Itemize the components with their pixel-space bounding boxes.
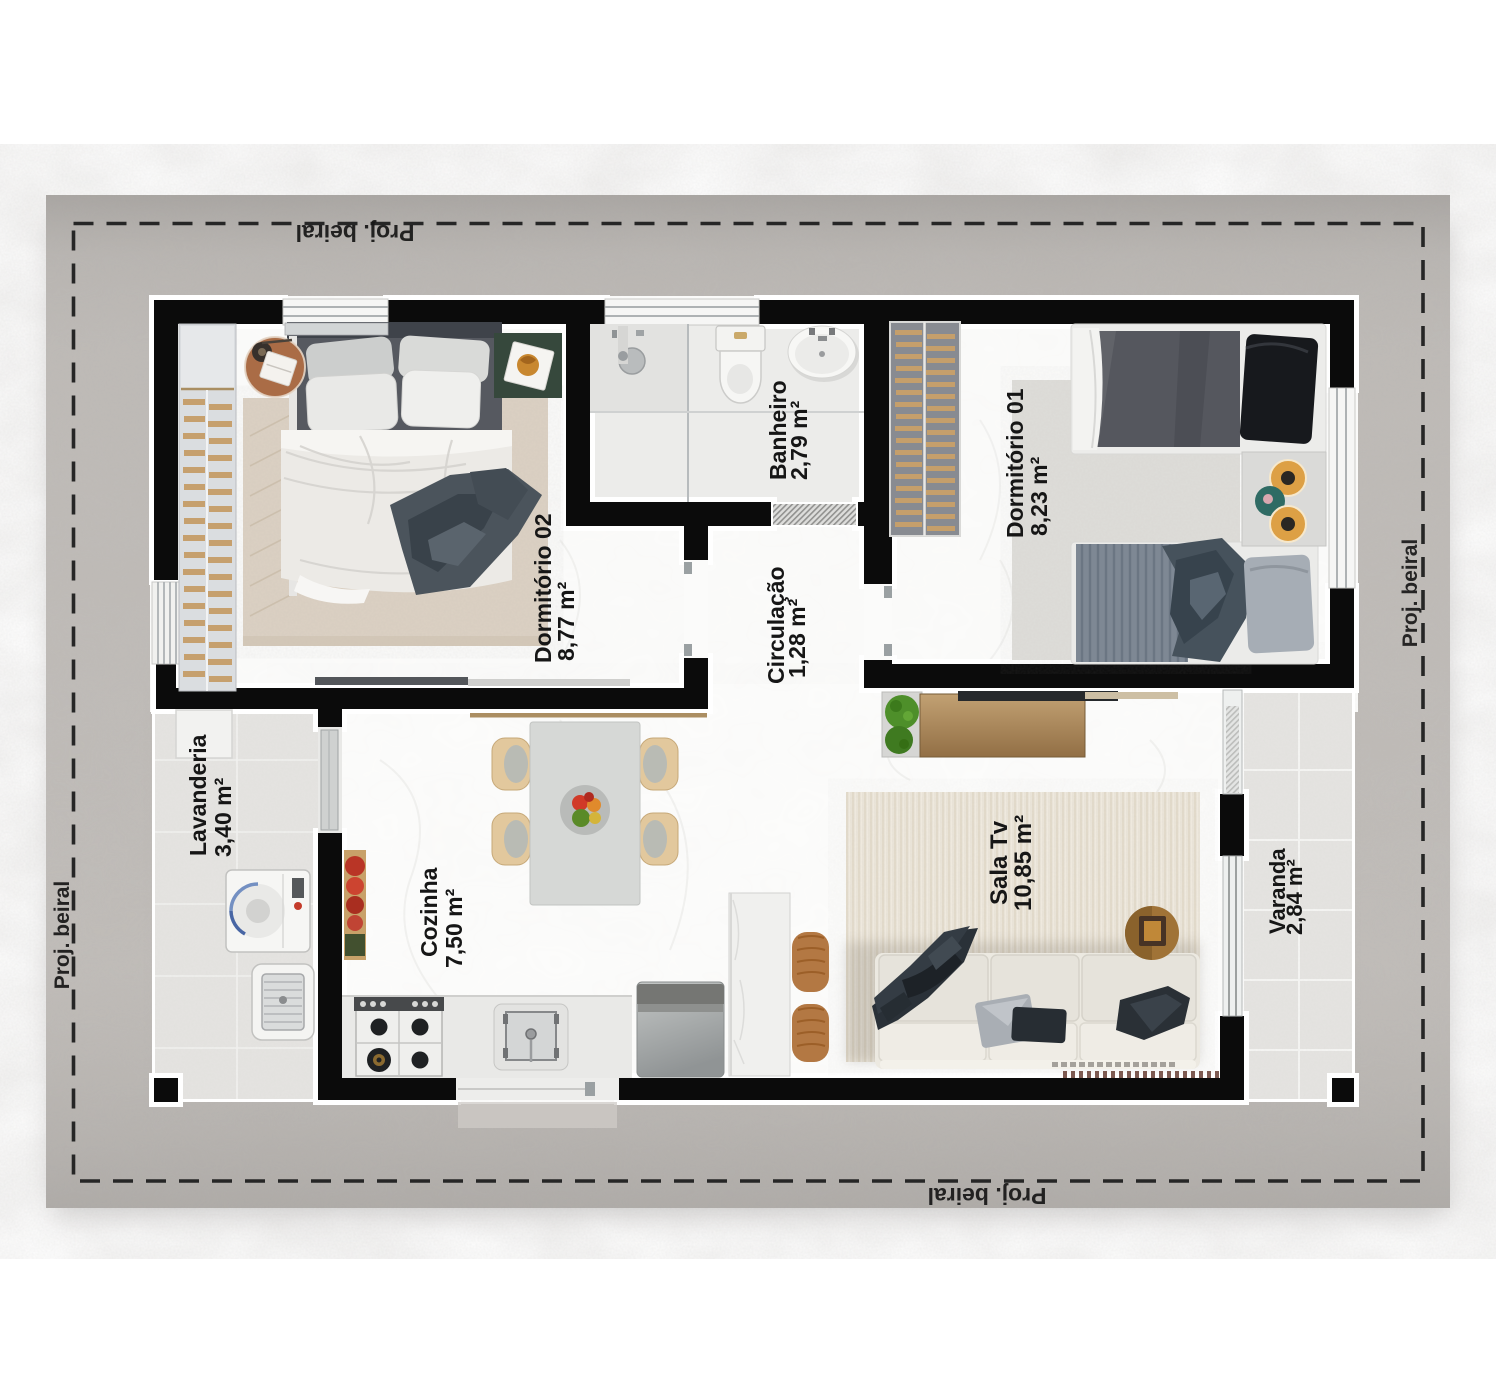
svg-text:3,40 m²: 3,40 m² <box>210 777 236 857</box>
svg-text:8,77 m²: 8,77 m² <box>553 581 579 661</box>
svg-text:8,23 m²: 8,23 m² <box>1026 456 1052 536</box>
svg-text:Sala Tv: Sala Tv <box>986 820 1013 905</box>
svg-text:10,85 m²: 10,85 m² <box>1010 815 1037 911</box>
svg-text:Proj. beiral: Proj. beiral <box>1399 539 1422 648</box>
svg-text:Proj. beiral: Proj. beiral <box>51 881 74 990</box>
svg-text:2,84 m²: 2,84 m² <box>1282 859 1307 935</box>
svg-text:2,79 m²: 2,79 m² <box>786 400 812 480</box>
svg-text:Proj. beiral: Proj. beiral <box>296 220 415 246</box>
svg-text:7,50 m²: 7,50 m² <box>441 888 467 968</box>
svg-text:Dormitório 01: Dormitório 01 <box>1002 388 1028 538</box>
svg-text:1,28 m²: 1,28 m² <box>784 598 810 678</box>
svg-text:Proj. beiral: Proj. beiral <box>928 1183 1047 1209</box>
svg-text:Cozinha: Cozinha <box>416 867 442 957</box>
svg-text:Lavanderia: Lavanderia <box>185 734 211 856</box>
